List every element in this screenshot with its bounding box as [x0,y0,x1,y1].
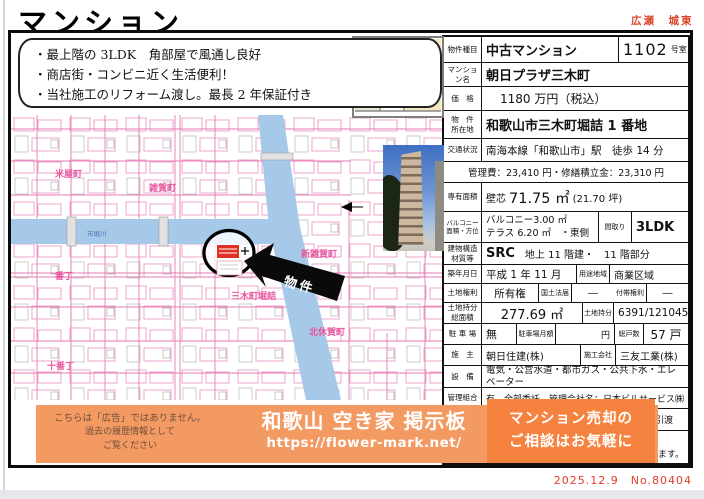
row-label: 設 備 [444,366,482,387]
river-label: 市堀川 [87,229,107,238]
facilities: 電気・公営水道・都市ガス・公共下水・エレベーター [482,366,688,387]
futai-value: ― [647,284,688,302]
row-label-line: 土地持分 [448,303,478,313]
price: 1180 万円（税込） [482,87,688,110]
table-row: マンション名 朝日プラザ三木町 [444,63,688,87]
row-label: 土地持分 総面積 [444,303,482,323]
row-label: 物 件 所在地 [444,111,482,138]
table-row: 施 主 朝日住建(株) 施工会社 三友工業(株) [444,345,688,366]
disclaimer-line: ご覧ください [42,440,218,454]
area-tsubo: (21.70 坪) [573,190,623,205]
disclaimer-line: 過去の履歴情報として [42,426,218,440]
sub-label: 土地持分 [583,303,614,323]
land-rights: 所有権 [482,284,538,302]
table-row: 駐 車 場 無 駐車場月額 円 総戸数 57 戸 [444,324,688,345]
structure: SRC 地上 11 階建・ 11 階部分 [482,243,688,264]
row-label-line: 物 件 [451,115,474,125]
page-bottom-strip [0,490,704,499]
map-label: 北休賀町 [309,326,345,338]
room-number: 1102 号室 [619,37,688,62]
map-label: 番丁 [54,270,73,282]
layout-type: 3LDK [632,212,688,242]
built-date: 平成 1 年 11 月 [482,265,577,283]
banner-disclaimer: こちらは「広告」ではありません。 過去の履歴情報として ご覧ください [42,412,218,453]
row-label: バルコニー 面積・方位 [444,212,482,242]
developer: 朝日住建(株) [482,345,581,365]
city-map: 米屋町 雑賀町 新雑賀町 三木町堀詰 北休賀町 番丁 十番丁 市堀川 [11,115,443,400]
parking-fee-unit: 円 [556,324,615,344]
content-frame: ・最上階の 3LDK 角部屋で風通し良好 ・商店街・コンビニ近く生活便利！ ・当… [8,30,693,468]
area-value: 71.75 ㎡ [509,187,570,208]
row-label-line: 所在地 [451,125,474,135]
table-row: 建物構造 材質等 SRC 地上 11 階建・ 11 階部分 [444,243,688,265]
builder: 三友工業(株) [616,345,688,365]
row-label: 駐 車 場 [444,324,482,344]
sub-label: 間取り [598,212,632,242]
table-row: 設 備 電気・公営水道・都市ガス・公共下水・エレベーター [444,366,688,388]
property-type: 中古マンション [482,37,619,62]
promo-line: マンション売却の [509,408,633,431]
date-number: 2025.12.9 No.80404 [554,472,692,488]
structure-type: SRC [486,246,515,261]
room-number-value: 1102 [623,40,668,59]
land-share: 6391/121045 [614,303,688,323]
page-left-edge [3,0,5,490]
area-prefix: 壁芯 [486,190,506,205]
row-label: 施 主 [444,345,482,365]
management-fee: 管理費：23,410 円・修繕積立金：23,310 円 [444,162,688,182]
parking: 無 [482,324,517,344]
room-number-unit: 号室 [671,44,687,55]
sub-label: 駐車場月額 [517,324,556,344]
bridge [67,217,76,246]
row-label: 築年月日 [444,265,482,283]
sub-label: 総戸数 [615,324,644,344]
table-row: 交通状況 南海本線「和歌山市」駅 徒歩 14 分 [444,139,688,162]
row-label: 価 格 [444,87,482,110]
table-row: 物件種目 中古マンション 1102 号室 [444,37,688,63]
banner-url: https://flower-mark.net/ [218,435,510,451]
property-marker [204,231,254,276]
row-label: 物件種目 [444,37,482,62]
transport: 南海本線「和歌山市」駅 徒歩 14 分 [482,139,688,161]
promo-line: ご相談はお気軽に [509,431,633,454]
building-photo [383,145,444,251]
highlight-line: ・最上階の 3LDK 角部屋で風通し良好 [34,44,432,63]
map-label: 新雑賀町 [301,248,337,260]
exclusive-area: 壁芯 71.75 ㎡ (21.70 坪) [482,183,688,211]
promo-box: マンション売却の ご相談はお気軽に [487,399,655,463]
table-row: 価 格 1180 万円（税込） [444,87,688,111]
balcony: バルコニー3.00 ㎡ テラス 6.20 ㎡ ・東側 [482,212,598,242]
kokudo-value: ― [572,284,614,302]
table-row: 専有面積 壁芯 71.75 ㎡ (21.70 坪) [444,183,688,212]
row-label: 専有面積 [444,183,482,211]
table-row: バルコニー 面積・方位 バルコニー3.00 ㎡ テラス 6.20 ㎡ ・東側 間… [444,212,688,243]
highlight-line: ・商店街・コンビニ近く生活便利！ [34,64,432,83]
side-building [435,161,444,251]
total-units: 57 戸 [644,324,688,344]
row-label-line: 建物構造 [448,244,478,254]
row-label: 土地権利 [444,284,482,302]
sub-label: 用途地域 [577,265,610,283]
district-tags: 広瀬 城東 [631,13,694,28]
row-label-line: 面積・方位 [446,227,479,235]
table-row: 土地持分 総面積 277.69 ㎡ 土地持分 6391/121045 [444,303,688,324]
table-row: 管理費：23,410 円・修繕積立金：23,310 円 [444,162,688,183]
highlights-box: ・最上階の 3LDK 角部屋で風通し良好 ・商店街・コンビニ近く生活便利！ ・当… [18,38,442,108]
disclaimer-line: こちらは「広告」ではありません。 [42,412,218,426]
row-label: 交通状況 [444,139,482,161]
condo-tower [397,151,427,245]
banner-title: 和歌山 空き家 掲示板 [218,407,510,435]
bridge [159,217,168,246]
highlight-line: ・当社施工のリフォーム渡し。最長 2 年保証付き [34,84,432,103]
row-label: マンション名 [444,63,482,86]
structure-floors: 地上 11 階建・ 11 階部分 [525,246,650,261]
row-label-line: 材質等 [451,254,474,264]
flyer-page: マンション 広瀬 城東 ・最上階の 3LDK 角部屋で風通し良好 ・商店街・コン… [0,0,704,499]
map-label: 三木町堀詰 [231,290,276,302]
row-label-line: バルコニー [446,219,478,227]
address: 和歌山市三木町堀詰 1 番地 [482,111,688,138]
sub-label: 国土法届 [538,284,572,302]
table-row: 物 件 所在地 和歌山市三木町堀詰 1 番地 [444,111,688,139]
table-row: 土地権利 所有権 国土法届 ― 付帯権利 ― [444,284,688,303]
row-label: 建物構造 材質等 [444,243,482,264]
sub-label: 施工会社 [581,345,616,365]
balcony-line: バルコニー3.00 ㎡ [486,214,567,227]
mansion-name: 朝日プラザ三木町 [482,63,688,86]
table-row: 築年月日 平成 1 年 11 月 用途地域 商業区域 [444,265,688,284]
bridge [261,153,293,160]
property-red-box [217,245,239,258]
balcony-line: テラス 6.20 ㎡ ・東側 [486,227,589,240]
banner-center: 和歌山 空き家 掲示板 https://flower-mark.net/ [218,407,510,451]
map-label: 米屋町 [54,168,82,180]
land-total-area: 277.69 ㎡ [482,303,583,323]
map-label: 十番丁 [47,360,74,372]
map-label: 雑賀町 [148,182,176,194]
zoning: 商業区域 [610,265,688,283]
row-label-line: 総面積 [451,313,474,323]
sub-label: 付帯権利 [614,284,647,302]
